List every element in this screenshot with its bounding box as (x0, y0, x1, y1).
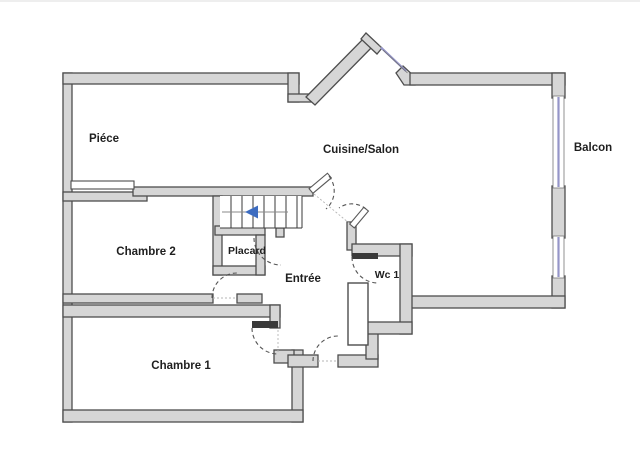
label-piece: Piéce (89, 133, 119, 145)
double-door-leaf-right (350, 207, 369, 228)
label-cuisine-salon: Cuisine/Salon (323, 144, 399, 156)
wall-landing-stub (276, 228, 284, 237)
chambre2-door-arc (212, 273, 237, 298)
wall-chambre1-bottom (63, 410, 303, 422)
chambre1-door-leaf (252, 321, 278, 328)
wall-right-middle (552, 186, 565, 238)
wall-wc-bottom (364, 322, 412, 334)
window-diagonal (379, 45, 408, 73)
double-door-arc-right (339, 204, 366, 209)
double-door-leaf-left (309, 173, 331, 193)
wall-corridor-stub (237, 294, 262, 303)
duct-shaft (348, 283, 368, 345)
floor-plan: Piéce Cuisine/Salon Balcon Chambre 2 Pla… (0, 0, 640, 459)
label-chambre2: Chambre 2 (116, 246, 175, 258)
wall-left-exterior (63, 73, 72, 422)
wall-divider-high (133, 187, 313, 196)
walls (63, 33, 565, 422)
wall-wc-right (400, 244, 412, 334)
label-entree: Entrée (285, 273, 321, 285)
label-placard: Placard (228, 245, 266, 257)
label-chambre1: Chambre 1 (151, 360, 211, 372)
sliding-door-pocket (71, 181, 134, 189)
wall-top-right (410, 73, 565, 85)
wall-chambre2-bottom (63, 294, 213, 303)
label-wc1: Wc 1 (375, 269, 400, 281)
double-door-opening-line (314, 194, 349, 223)
wall-top-left (63, 73, 299, 84)
window-right-lower (553, 236, 564, 278)
label-balcon: Balcon (574, 142, 612, 154)
staircase (220, 196, 302, 228)
wall-diagonal-left (306, 35, 376, 105)
wall-chambre1-top (63, 305, 280, 317)
wc-door-leaf (352, 253, 378, 259)
wall-cuisine-bottom (406, 296, 565, 308)
wall-right-corner-top (552, 73, 565, 98)
window-right-upper (553, 96, 564, 188)
floor-plan-page: Piéce Cuisine/Salon Balcon Chambre 2 Pla… (0, 0, 640, 459)
